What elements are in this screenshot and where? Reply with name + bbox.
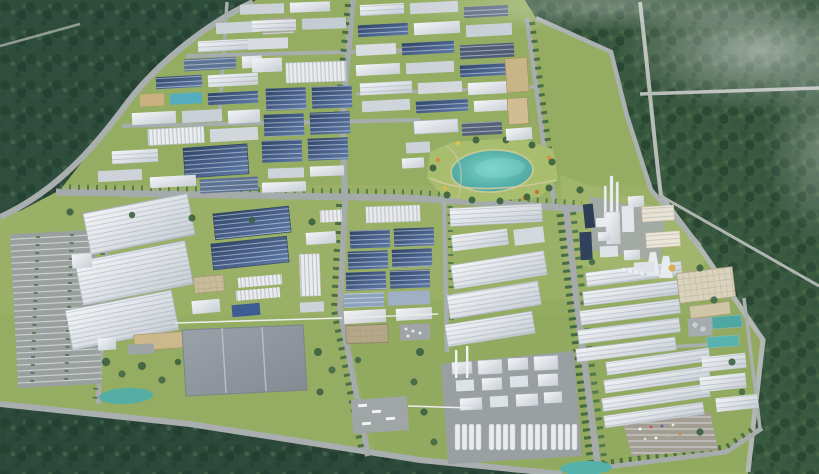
flower-bed-2 xyxy=(443,186,447,190)
blue-warehouse-5-texture xyxy=(262,139,303,162)
bldg-nw-4-texture xyxy=(156,75,203,89)
glass-pool-roof xyxy=(170,92,203,105)
tree-11 xyxy=(314,348,322,356)
scene-svg xyxy=(0,0,819,474)
rack-structure-texture xyxy=(193,275,224,294)
equipment-2 xyxy=(412,330,415,333)
gray-flat-building xyxy=(182,325,307,396)
car-4 xyxy=(672,424,675,427)
bldg-ne-9-texture xyxy=(460,43,515,60)
tree-10 xyxy=(175,359,181,365)
silo-11 xyxy=(535,424,540,450)
tree-7 xyxy=(118,370,125,377)
lake-tree-7 xyxy=(549,159,556,166)
column-bank-center-texture xyxy=(366,205,421,223)
silo-6 xyxy=(496,424,501,450)
bldg-sw-4 xyxy=(306,231,337,245)
equipment-4 xyxy=(407,335,410,338)
plant-silo-3 xyxy=(634,270,638,274)
refinery-box-6 xyxy=(482,377,503,390)
tank-farm-column-texture xyxy=(299,254,320,297)
plant-box-2 xyxy=(596,218,606,228)
treatment-pool-1 xyxy=(712,315,743,329)
silo-13 xyxy=(551,424,556,450)
frame-building-texture xyxy=(346,324,389,343)
refinery-box-3 xyxy=(508,357,529,370)
refinery-box-1 xyxy=(452,361,473,374)
refinery-box-4 xyxy=(534,355,559,370)
truck-2 xyxy=(372,410,381,414)
plant-box-3 xyxy=(598,232,610,242)
blue-grid-4-texture xyxy=(392,248,433,267)
treatment-pool-2 xyxy=(707,335,740,348)
lake-tree-8 xyxy=(529,142,536,149)
bldg-sw-1 xyxy=(98,337,117,350)
tree-14 xyxy=(355,357,361,363)
truck-4 xyxy=(362,422,371,426)
tree-20 xyxy=(710,296,717,303)
tree-4 xyxy=(249,217,255,223)
equipment-1 xyxy=(405,328,408,331)
refinery-box-10 xyxy=(490,396,509,408)
refinery-stack-2 xyxy=(466,346,468,378)
plant-box-4 xyxy=(600,246,619,258)
bldg-ne-10 xyxy=(356,63,401,76)
tank-bank-s3-texture xyxy=(320,209,343,222)
treatment-pad xyxy=(687,317,712,337)
bldg-n-3-texture xyxy=(252,19,296,32)
bldg-nw-10 xyxy=(228,109,261,124)
refinery-box-11 xyxy=(516,393,539,406)
bldg-n-9 xyxy=(262,181,306,193)
bldg-nw-14 xyxy=(98,169,143,182)
bldg-nw-11 xyxy=(210,127,259,142)
silo-2 xyxy=(462,424,467,450)
car-3 xyxy=(661,425,664,428)
bldg-n-8 xyxy=(310,165,344,176)
lake-tree-4 xyxy=(497,198,504,205)
silo-9 xyxy=(521,424,526,450)
tree-21 xyxy=(728,358,735,365)
bldg-ne-14 xyxy=(418,81,463,94)
refinery-box-2 xyxy=(478,359,503,374)
bldg-n-4 xyxy=(302,17,346,30)
beige-tower-2 xyxy=(507,97,529,124)
tree-1 xyxy=(66,208,73,215)
tree-9 xyxy=(158,376,165,383)
tree-3 xyxy=(188,214,195,221)
lake-tree-2 xyxy=(444,192,451,199)
silo-14 xyxy=(558,424,563,450)
tree-23 xyxy=(696,428,703,435)
silo-bank-nw-texture xyxy=(148,127,205,146)
silo-7 xyxy=(503,424,508,450)
bldg-ne-20-texture xyxy=(462,121,503,136)
tree-5 xyxy=(308,218,315,225)
refinery-box-8 xyxy=(538,373,559,386)
clarifier-1 xyxy=(692,322,698,328)
plant-silo-1 xyxy=(622,268,626,272)
silo-15 xyxy=(565,424,570,450)
tree-25 xyxy=(589,259,595,265)
utility-pad xyxy=(128,343,154,354)
tree-6 xyxy=(102,358,110,366)
silo-5 xyxy=(489,424,494,450)
refinery-box-9 xyxy=(460,397,483,410)
blue-warehouse-1-texture xyxy=(266,87,307,110)
silo-10 xyxy=(528,424,533,450)
bldg-nw-13-texture xyxy=(112,149,159,164)
tank-bank-n-texture xyxy=(286,61,347,83)
blue-warehouse-2-texture xyxy=(312,85,353,108)
bldg-sw-3 xyxy=(191,299,220,314)
blue-warehouse-4-texture xyxy=(310,111,351,134)
tree-24 xyxy=(576,186,583,193)
blue-grid-5-texture xyxy=(346,271,387,290)
bldg-n-5 xyxy=(248,37,288,49)
silo-16 xyxy=(572,424,577,450)
tree-26 xyxy=(668,264,675,271)
bldg-ne-22 xyxy=(406,141,431,153)
tree-2 xyxy=(129,212,135,218)
plant-silo-4 xyxy=(640,271,644,275)
bldg-nw-12-texture xyxy=(183,144,249,178)
plant-cream-shed-2-texture xyxy=(646,231,681,248)
bldg-ne-12-texture xyxy=(460,63,509,77)
clarifier-2 xyxy=(700,326,706,332)
plant-box-5 xyxy=(624,250,641,261)
car-7 xyxy=(666,435,669,438)
flower-bed-5 xyxy=(456,141,460,145)
refinery-box-7 xyxy=(510,376,529,388)
blue-warehouse-6-texture xyxy=(308,137,349,160)
car-2 xyxy=(650,426,653,429)
lake-tree-10 xyxy=(473,137,480,144)
tree-17 xyxy=(420,408,427,415)
refinery-stack-1 xyxy=(455,350,457,378)
blue-grid-8 xyxy=(388,290,430,305)
bldg-n-1 xyxy=(240,3,284,15)
car-5 xyxy=(644,438,647,441)
lake-tree-1 xyxy=(430,165,437,172)
blue-grid-6-texture xyxy=(390,269,431,288)
bldg-sw-5 xyxy=(300,301,324,312)
lake-tree-5 xyxy=(524,194,531,201)
car-1 xyxy=(639,428,642,431)
tree-22 xyxy=(739,389,745,395)
car-8 xyxy=(679,433,682,436)
plant-silo-2 xyxy=(628,269,632,273)
bldg-n-6 xyxy=(252,57,282,72)
lake-tree-6 xyxy=(546,185,553,192)
blue-grid-1-texture xyxy=(350,229,391,248)
plant-dark-building xyxy=(579,232,592,261)
tree-19 xyxy=(696,264,703,271)
bldg-nw-9 xyxy=(182,109,223,123)
bldg-ne-21 xyxy=(506,127,533,141)
flower-bed-4 xyxy=(535,190,539,194)
silo-8 xyxy=(510,424,515,450)
industrial-park-render xyxy=(0,0,819,474)
equipment-3 xyxy=(419,332,422,335)
silo-1 xyxy=(455,424,460,450)
tree-8 xyxy=(138,362,146,370)
refinery-box-12 xyxy=(544,392,563,404)
bldg-ne-15 xyxy=(468,81,513,95)
silo-3 xyxy=(469,424,474,450)
bldg-n-7 xyxy=(268,167,304,178)
beige-tower-1 xyxy=(505,57,529,92)
plant-cream-shed-1-texture xyxy=(642,205,675,222)
bldg-nw-6 xyxy=(140,93,165,106)
truck-dock-pad xyxy=(351,396,409,434)
silo-12 xyxy=(542,424,547,450)
blue-grid-7-texture xyxy=(344,292,384,307)
refinery-box-5 xyxy=(456,380,475,392)
blue-grid-3-texture xyxy=(348,250,389,269)
tree-13 xyxy=(316,388,323,395)
lake-tree-3 xyxy=(469,197,476,204)
bldg-sw-blue xyxy=(232,303,261,317)
tree-12 xyxy=(328,366,335,373)
bldg-ne-19 xyxy=(414,119,459,134)
equipment-yard xyxy=(400,323,431,341)
blue-warehouse-3-texture xyxy=(264,113,305,136)
silo-4 xyxy=(476,424,481,450)
blue-grid-2-texture xyxy=(394,227,435,246)
bldg-sw-2 xyxy=(72,253,93,268)
bldg-ne-7 xyxy=(356,43,397,56)
car-6 xyxy=(655,437,658,440)
tree-18 xyxy=(430,438,437,445)
tree-16 xyxy=(410,378,417,385)
truck-3 xyxy=(386,417,395,421)
truck-1 xyxy=(358,404,367,408)
bldg-ne-23 xyxy=(402,157,424,168)
plant-tower-2 xyxy=(622,206,635,232)
flower-bed-1 xyxy=(436,158,440,162)
bldg-n-2 xyxy=(290,1,330,12)
bldg-nw-8 xyxy=(132,111,177,125)
tree-15 xyxy=(416,348,424,356)
plant-box-1 xyxy=(628,195,645,207)
